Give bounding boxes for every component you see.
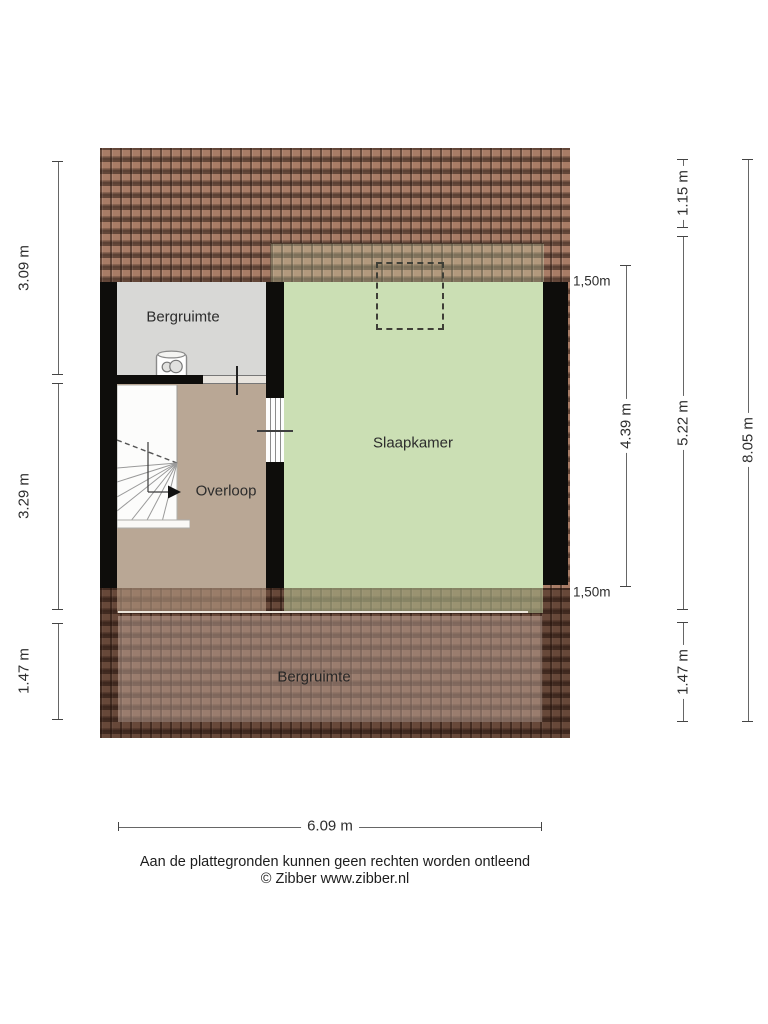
height-marker-top: 1,50m <box>573 274 611 289</box>
dim-label: 1.47 m <box>675 645 692 699</box>
wall-divider-upper <box>266 282 284 398</box>
skylight-dashed-outline <box>376 262 444 330</box>
staircase <box>117 385 190 530</box>
dim-label: 1.47 m <box>16 648 33 694</box>
dim-label: 5.22 m <box>675 396 692 450</box>
window-center-tick <box>257 430 293 432</box>
label-bergruimte-bottom: Bergruimte <box>277 669 350 686</box>
dim-label: 1.15 m <box>675 166 692 220</box>
floorplan-page: Bergruimte Slaapkamer Overloop Bergruimt… <box>0 0 768 1024</box>
wall-divider-lower <box>266 462 284 590</box>
dim-label: 3.29 m <box>16 473 33 519</box>
room-bergruimte-top <box>117 282 266 375</box>
label-overloop: Overloop <box>196 483 257 500</box>
knee-wall-line <box>118 611 528 613</box>
door-opening <box>203 375 266 384</box>
footer-copyright: © Zibber www.zibber.nl <box>100 871 570 888</box>
roof-tint-landing <box>117 588 266 613</box>
height-marker-bottom: 1,50m <box>573 585 611 600</box>
dim-label: 6.09 m <box>301 818 359 835</box>
dim-label: 8.05 m <box>740 413 757 467</box>
wall-right <box>543 282 568 585</box>
door-leaf-line <box>236 366 238 395</box>
dim-label: 3.09 m <box>16 245 33 291</box>
wall-storage-landing <box>100 375 203 384</box>
dim-label: 4.39 m <box>618 399 635 453</box>
label-bergruimte-top: Bergruimte <box>146 309 219 326</box>
label-slaapkamer: Slaapkamer <box>373 435 453 452</box>
wall-left <box>100 282 117 610</box>
roof-tint-bedroom <box>284 588 543 613</box>
footer-disclaimer: Aan de plattegronden kunnen geen rechten… <box>100 854 570 871</box>
